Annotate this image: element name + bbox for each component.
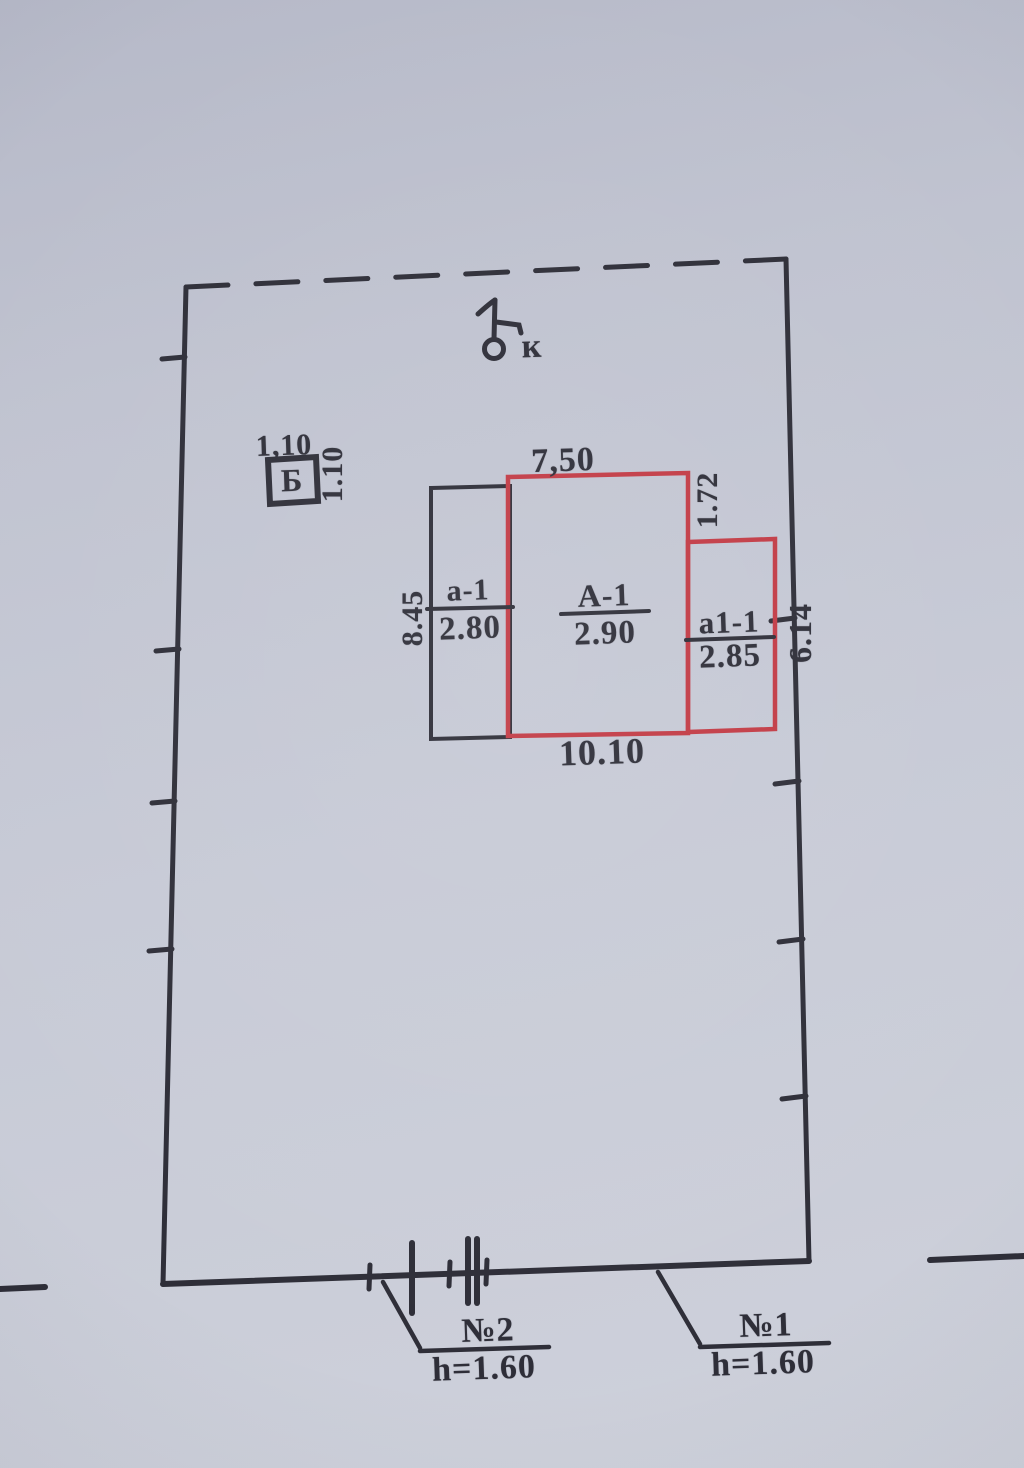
building-a1-1-label: а1-1	[698, 605, 760, 638]
dim-right-6-14: 6.14	[784, 603, 816, 663]
building-a1-1-value: 2.85	[699, 639, 762, 674]
dim-bottom-10-10: 10.10	[558, 733, 645, 772]
building-a-1-label: а-1	[446, 575, 490, 606]
building-A-1-value: 2.90	[574, 616, 637, 651]
shed-letter: Б	[280, 464, 303, 497]
building-A-1-label: А-1	[577, 578, 631, 612]
building-a-1-value: 2.80	[439, 611, 502, 646]
scanned-plan-page: к 1,10 Б 1.10 7,50 1.72 8.45 6.14 10.10 …	[0, 0, 1024, 1468]
gate-2-height: h=1.60	[432, 1350, 537, 1388]
plot-boundary-left	[163, 287, 186, 1284]
gate-1-height: h=1.60	[711, 1345, 816, 1383]
dim-left-8-45: 8.45	[398, 590, 428, 647]
dim-top-7-50: 7,50	[531, 443, 596, 479]
gate-2-number: №2	[461, 1313, 515, 1349]
plot-boundary-top-dashed	[186, 259, 786, 287]
dim-offset-1-72: 1.72	[693, 472, 723, 529]
well-icon	[478, 300, 521, 359]
plan-drawing	[0, 0, 1024, 1468]
shed-dim-top: 1,10	[255, 430, 313, 462]
shed-dim-side: 1.10	[318, 446, 348, 503]
well-letter: к	[521, 330, 543, 365]
gate-1-number: №1	[739, 1308, 793, 1344]
plot-boundary-right	[786, 259, 809, 1261]
plot-boundary	[163, 259, 809, 1284]
